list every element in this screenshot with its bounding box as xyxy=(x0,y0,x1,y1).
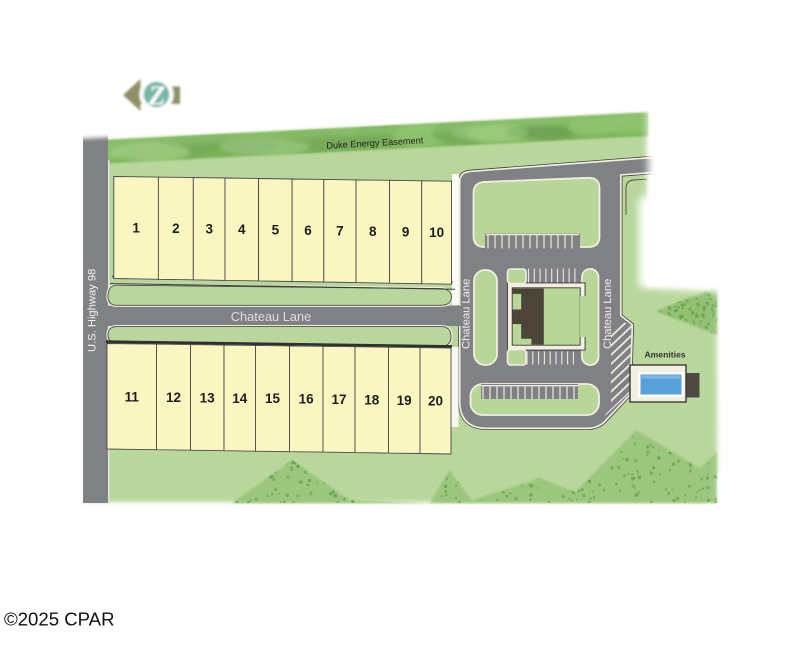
svg-text:19: 19 xyxy=(397,393,412,408)
svg-text:6: 6 xyxy=(304,223,312,238)
svg-text:Chateau Lane: Chateau Lane xyxy=(231,309,311,324)
svg-text:16: 16 xyxy=(299,392,315,407)
svg-text:U.S. Highway 98: U.S. Highway 98 xyxy=(87,269,99,352)
svg-text:Chateau Lane: Chateau Lane xyxy=(461,279,473,349)
svg-text:13: 13 xyxy=(200,390,216,405)
svg-text:8: 8 xyxy=(369,224,377,239)
svg-text:3: 3 xyxy=(205,222,213,237)
svg-text:20: 20 xyxy=(428,394,443,409)
svg-text:2: 2 xyxy=(172,221,180,236)
svg-text:10: 10 xyxy=(429,225,444,240)
svg-text:7: 7 xyxy=(336,224,344,239)
svg-text:17: 17 xyxy=(331,392,346,407)
svg-text:1: 1 xyxy=(132,221,140,236)
svg-text:5: 5 xyxy=(272,223,280,238)
svg-text:12: 12 xyxy=(166,390,181,405)
svg-text:14: 14 xyxy=(232,391,248,406)
svg-text:9: 9 xyxy=(402,225,410,240)
svg-text:4: 4 xyxy=(238,222,246,237)
svg-text:Chateau Lane: Chateau Lane xyxy=(602,279,614,349)
svg-text:11: 11 xyxy=(125,389,140,404)
svg-text:18: 18 xyxy=(364,393,380,408)
svg-text:Amenities: Amenities xyxy=(644,350,685,360)
svg-text:©2025 CPAR: ©2025 CPAR xyxy=(4,609,115,630)
svg-text:15: 15 xyxy=(265,391,281,406)
svg-text:Z: Z xyxy=(148,81,166,111)
